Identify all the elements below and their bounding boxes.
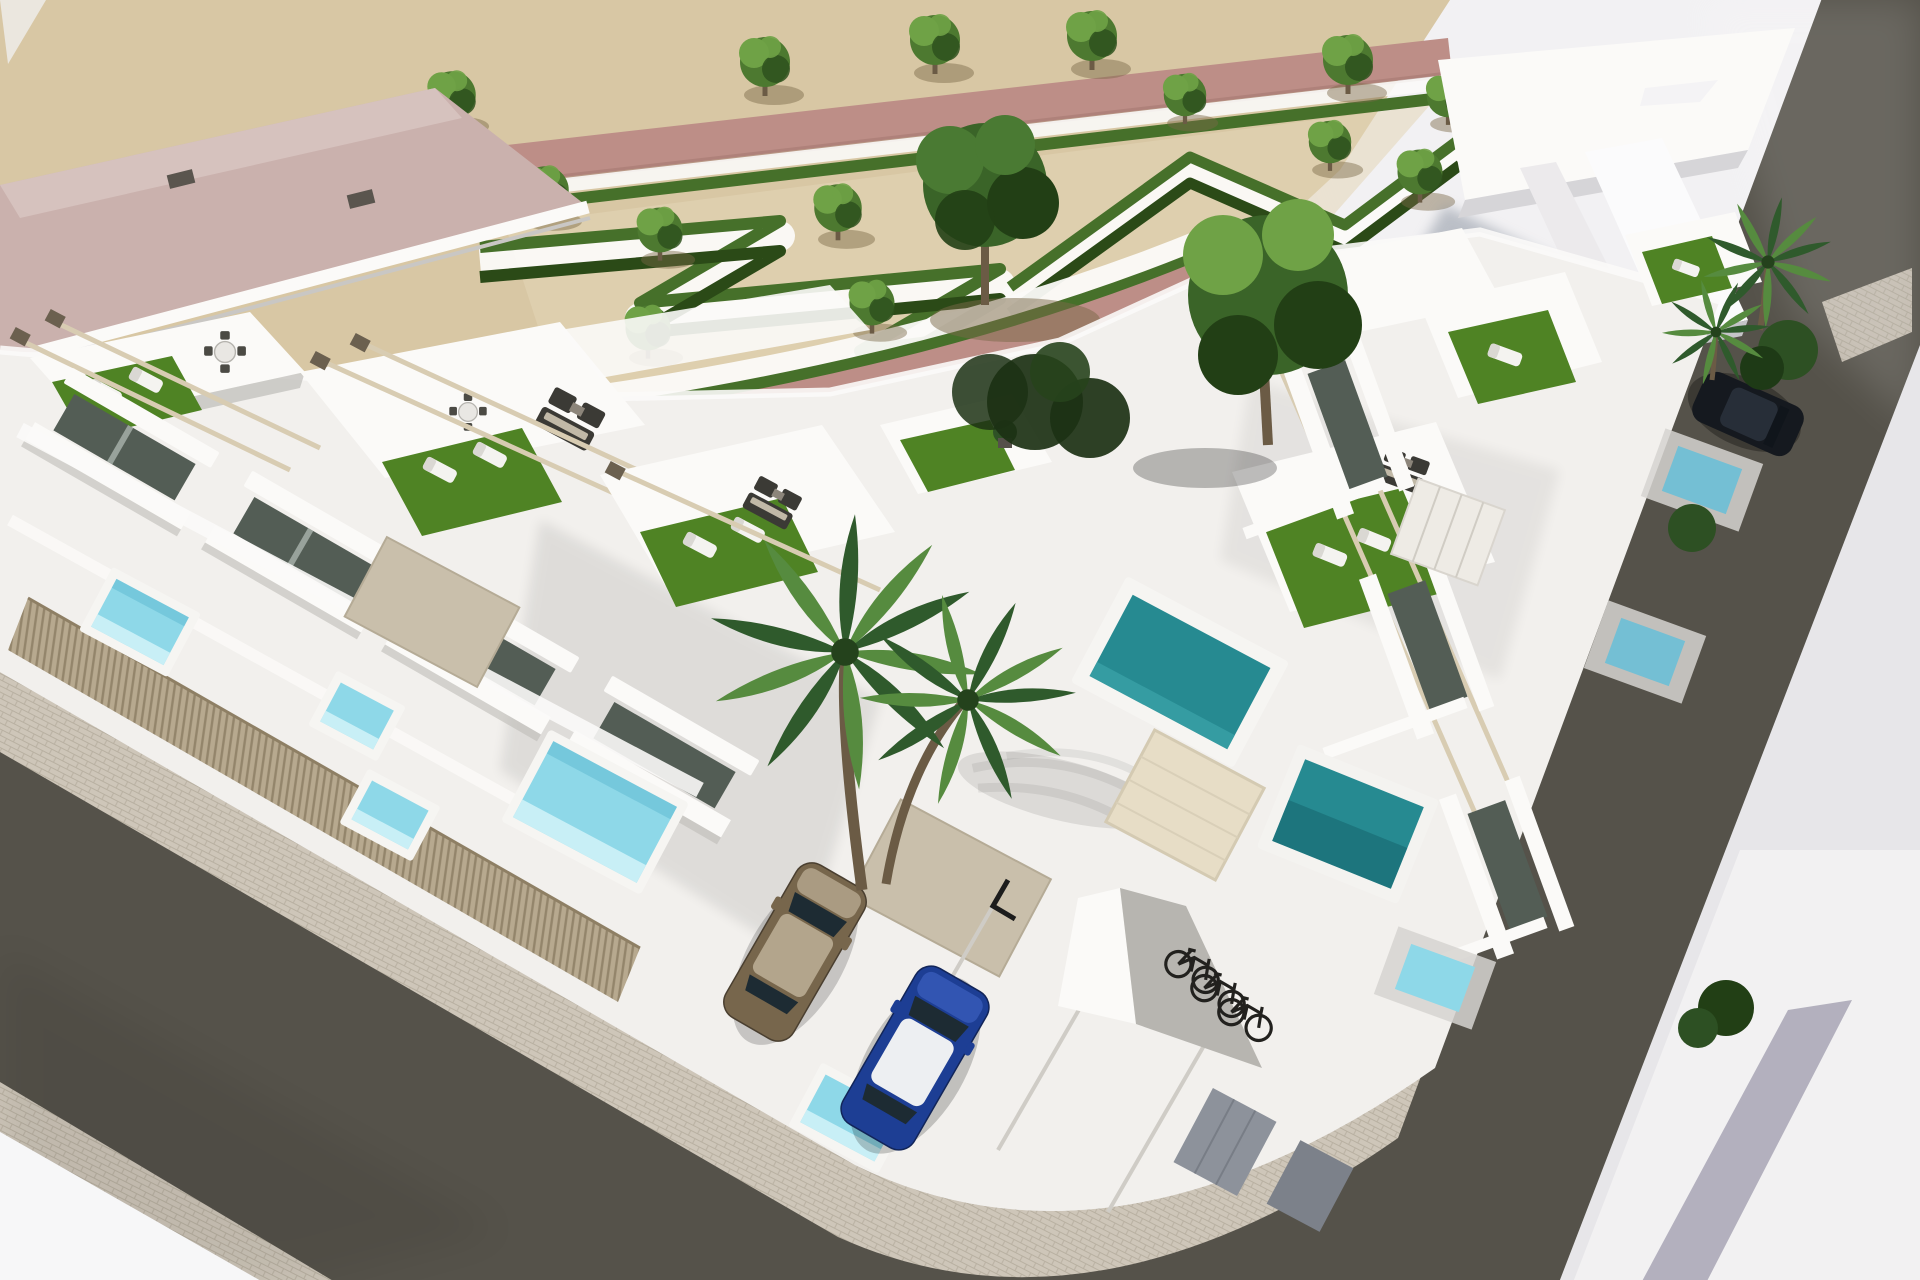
architectural-render: [0, 0, 1920, 1280]
render-canvas: [0, 0, 1920, 1280]
